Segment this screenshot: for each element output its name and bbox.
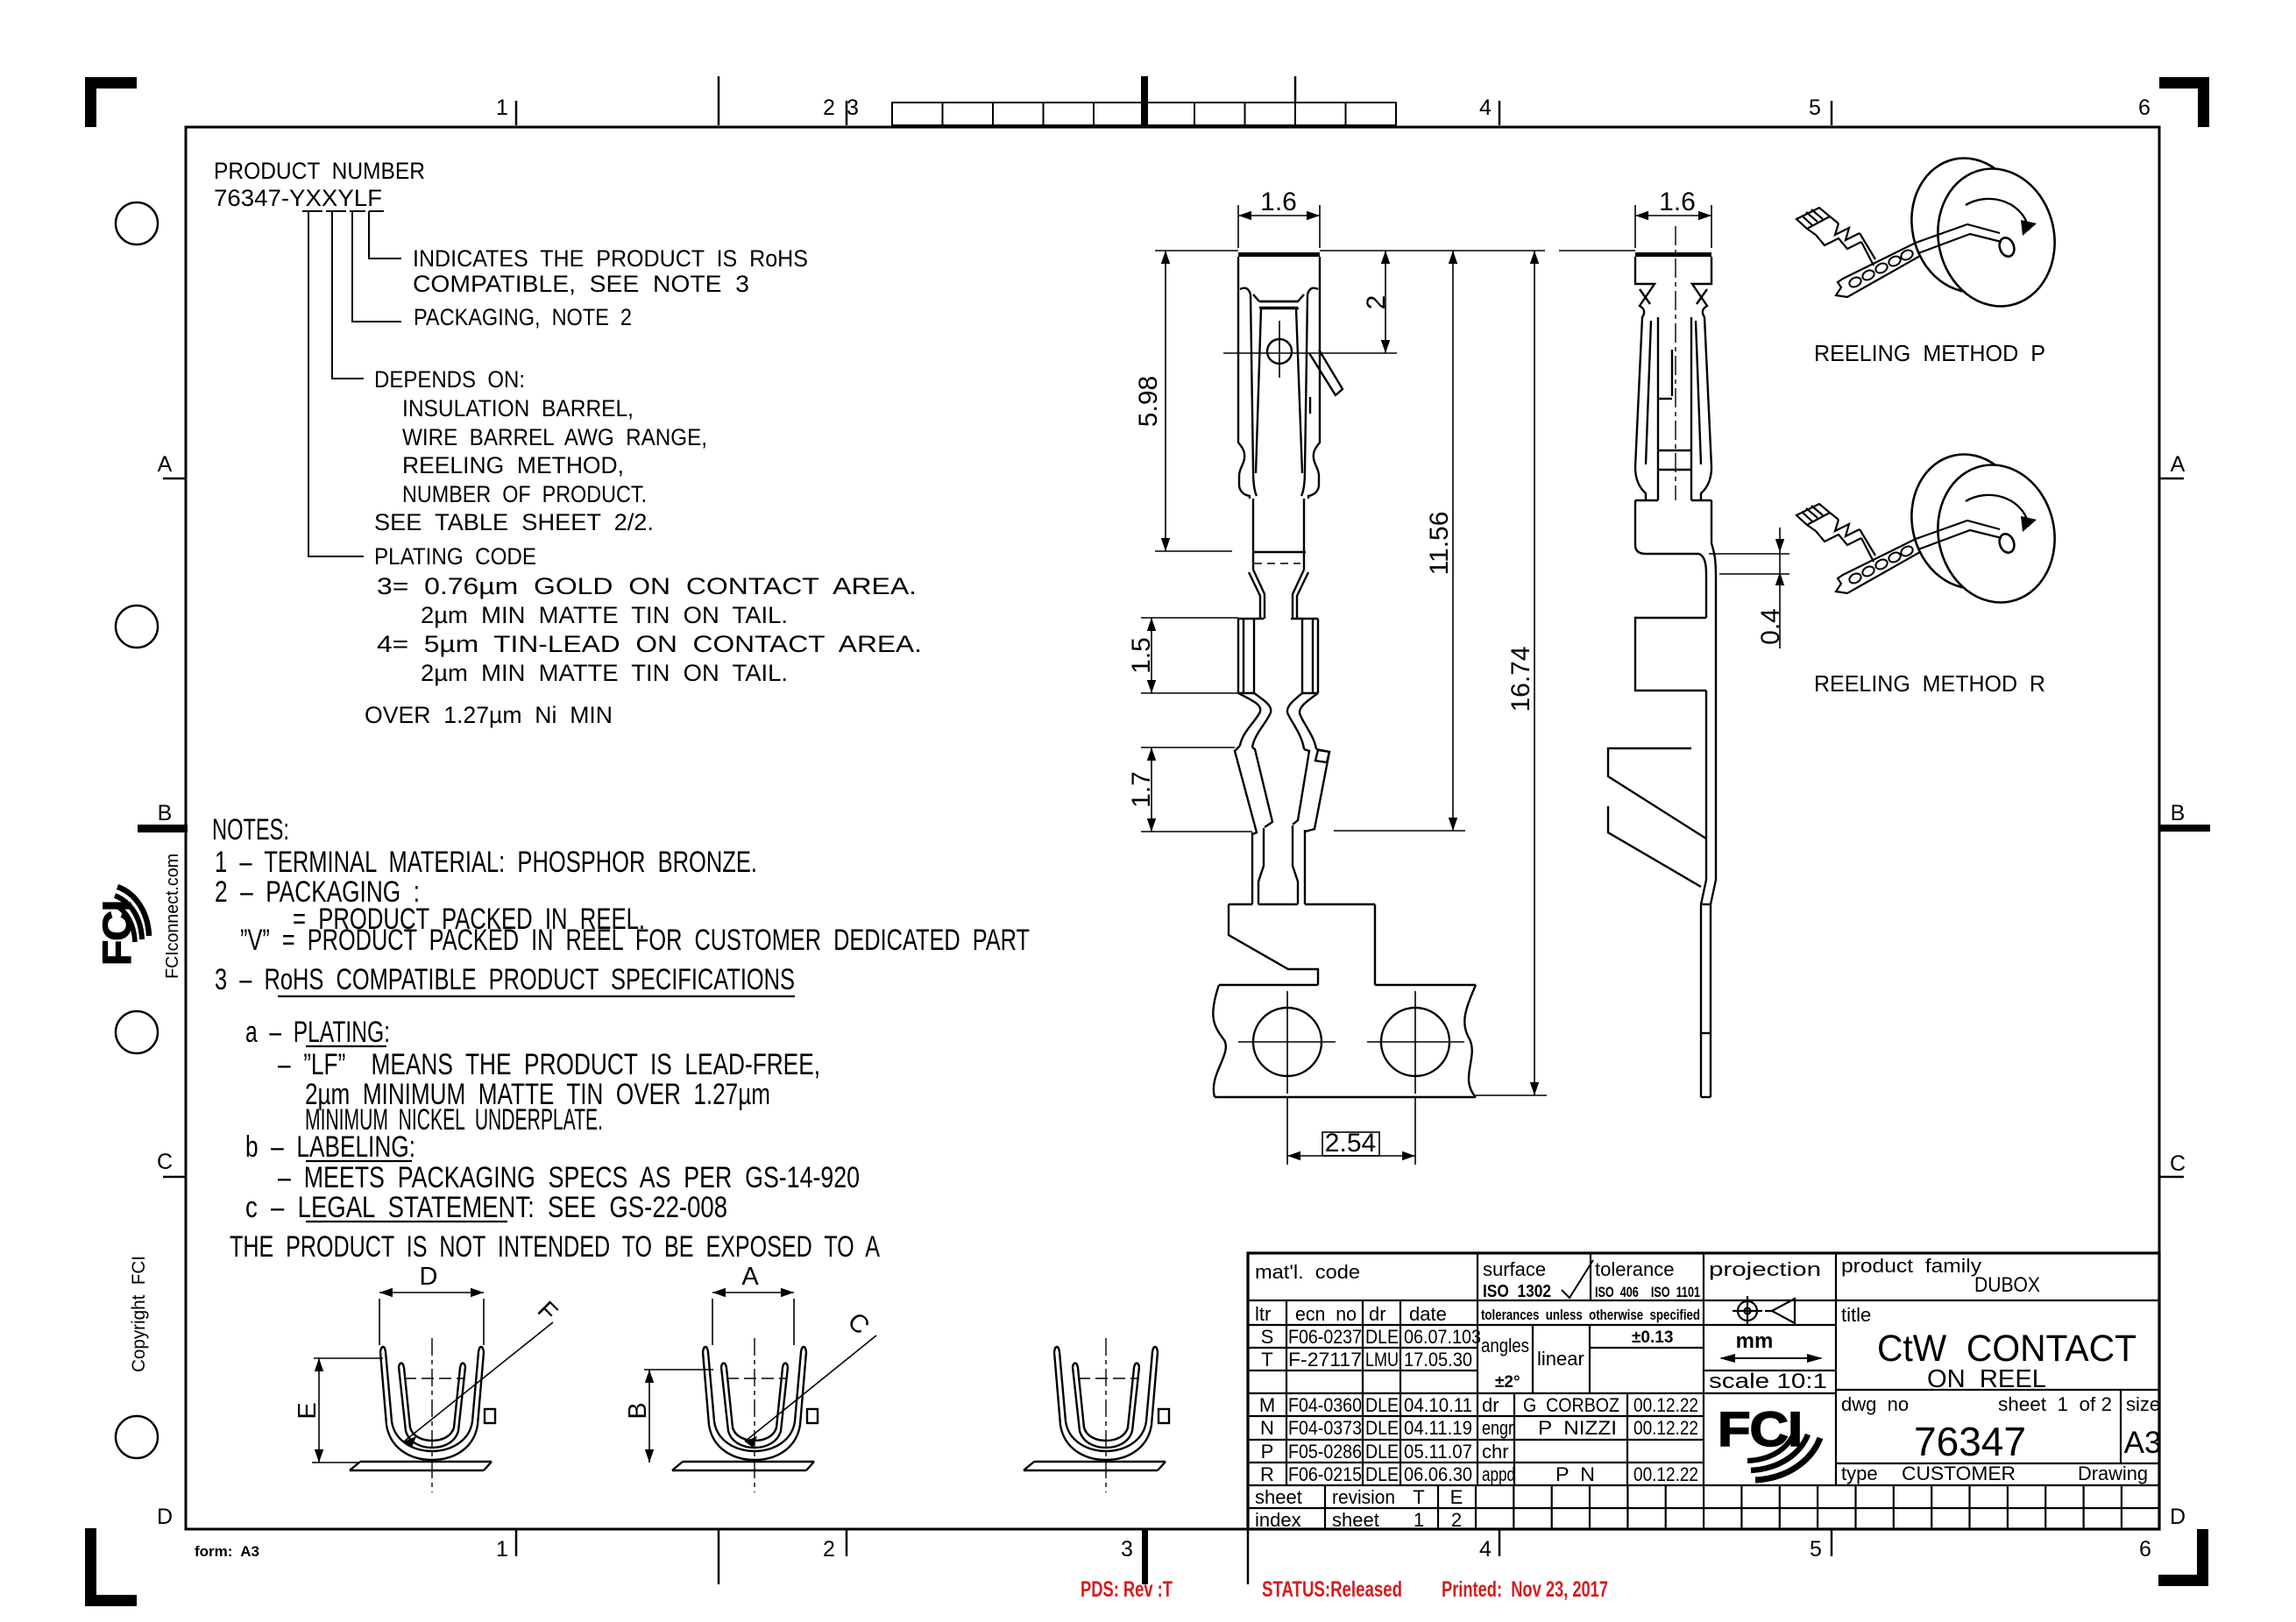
svg-text:P N: P N — [1555, 1463, 1595, 1485]
svg-text:tolerance: tolerance — [1595, 1258, 1675, 1280]
svg-text:76347: 76347 — [1914, 1419, 2026, 1464]
svg-text:2: 2 — [1362, 295, 1391, 310]
svg-text:P NIZZI: P NIZZI — [1538, 1417, 1617, 1439]
svg-text:index: index — [1255, 1509, 1301, 1531]
svg-text:title: title — [1841, 1304, 1871, 1326]
svg-text:surface: surface — [1483, 1258, 1546, 1280]
svg-text:A: A — [158, 452, 173, 477]
svg-text:F04-0360: F04-0360 — [1288, 1394, 1362, 1416]
svg-text:FCIconnect.com: FCIconnect.com — [163, 853, 182, 979]
svg-text:DUBOX: DUBOX — [1974, 1273, 2040, 1297]
svg-text:2µm MIN MATTE TIN ON TAIL: 2µm MIN MATTE TIN ON TAIL. — [421, 602, 788, 628]
svg-text:LMU: LMU — [1365, 1349, 1399, 1371]
svg-text:scale 10:1: scale 10:1 — [1709, 1370, 1827, 1393]
svg-text:00.12.22: 00.12.22 — [1633, 1463, 1698, 1485]
svg-text:linear: linear — [1537, 1348, 1584, 1370]
svg-text:F-27117: F-27117 — [1288, 1349, 1362, 1371]
svg-text:ISO 406 ISO 1101: ISO 406 ISO 1101 — [1595, 1284, 1700, 1300]
svg-text:chr: chr — [1482, 1441, 1509, 1463]
svg-text:5: 5 — [1809, 96, 1821, 120]
svg-text:Printed: Nov 23, 2017: Printed: Nov 23, 2017 — [1442, 1577, 1608, 1602]
svg-text:4= 5µm TIN-LEAD ON CONTACT: 4= 5µm TIN-LEAD ON CONTACT AREA. — [377, 631, 922, 657]
svg-text:11.56: 11.56 — [1425, 512, 1454, 576]
svg-text:17.05.30: 17.05.30 — [1404, 1349, 1472, 1371]
svg-text:c – LEGAL STATEMENT: SEE: c – LEGAL STATEMENT: SEE GS-22-008 — [245, 1191, 727, 1224]
svg-text:M: M — [1259, 1394, 1275, 1416]
svg-text:0.4: 0.4 — [1756, 608, 1785, 645]
svg-text:projection: projection — [1709, 1258, 1821, 1280]
svg-text:THE PRODUCT IS NOT INTENDE: THE PRODUCT IS NOT INTENDED TO BE EXPOSE… — [230, 1230, 880, 1264]
svg-text:DLE: DLE — [1365, 1441, 1399, 1463]
svg-text:sheet 1 of 2: sheet 1 of 2 — [1998, 1393, 2112, 1415]
svg-text:B: B — [158, 801, 173, 825]
svg-text:F06-0237: F06-0237 — [1288, 1326, 1362, 1348]
svg-text:T: T — [1261, 1349, 1272, 1371]
svg-text:1: 1 — [1414, 1509, 1424, 1531]
svg-text:6: 6 — [2138, 96, 2151, 120]
svg-text:size: size — [2126, 1393, 2160, 1415]
svg-text:1 – TERMINAL MATERIAL: PHO: 1 – TERMINAL MATERIAL: PHOSPHOR BRONZE. — [215, 846, 757, 879]
svg-text:– ”LF” MEANS THE PRODUCT: – ”LF” MEANS THE PRODUCT IS LEAD-FREE, — [278, 1048, 820, 1081]
svg-text:ISO 1302: ISO 1302 — [1483, 1282, 1551, 1301]
svg-text:”V” = PRODUCT PACKED IN R: ”V” = PRODUCT PACKED IN REEL FOR CUSTOME… — [240, 924, 1030, 957]
svg-text:sheet: sheet — [1332, 1509, 1379, 1531]
svg-text:B: B — [624, 1402, 652, 1419]
svg-text:3= 0.76µm GOLD ON CONTACT: 3= 0.76µm GOLD ON CONTACT AREA. — [377, 573, 917, 599]
svg-text:Drawing: Drawing — [2078, 1463, 2148, 1484]
svg-text:D: D — [2170, 1505, 2186, 1529]
svg-text:B: B — [2171, 801, 2186, 825]
svg-text:mat'l. code: mat'l. code — [1255, 1261, 1360, 1283]
svg-text:F04-0373: F04-0373 — [1288, 1417, 1362, 1439]
svg-text:A: A — [2171, 452, 2186, 477]
svg-text:CUSTOMER: CUSTOMER — [1902, 1463, 2016, 1484]
svg-text:N: N — [1260, 1417, 1274, 1439]
svg-text:DLE: DLE — [1365, 1326, 1399, 1348]
svg-text:DLE: DLE — [1365, 1417, 1399, 1439]
svg-text:1.7: 1.7 — [1127, 771, 1156, 808]
svg-text:16.74: 16.74 — [1506, 646, 1535, 712]
svg-text:date: date — [1409, 1303, 1447, 1325]
svg-text:WIRE BARREL AWG RANGE,: WIRE BARREL AWG RANGE, — [402, 424, 707, 450]
svg-text:1: 1 — [496, 96, 508, 120]
svg-text:F05-0286: F05-0286 — [1288, 1441, 1362, 1463]
svg-text:form: A3: form: A3 — [195, 1543, 259, 1560]
svg-text:G CORBOZ: G CORBOZ — [1523, 1394, 1619, 1416]
svg-text:76347-YXXYLF: 76347-YXXYLF — [214, 185, 382, 211]
svg-text:2: 2 — [823, 1537, 835, 1562]
svg-text:appd: appd — [1482, 1463, 1515, 1485]
svg-text:a – PLATING:: a – PLATING: — [245, 1016, 390, 1049]
svg-text:ltr: ltr — [1255, 1303, 1271, 1325]
svg-text:±0.13: ±0.13 — [1632, 1328, 1673, 1347]
svg-text:4: 4 — [1479, 96, 1492, 120]
svg-text:00.12.22: 00.12.22 — [1633, 1417, 1698, 1439]
svg-text:3 – RoHS COMPATIBLE PRODUC: 3 – RoHS COMPATIBLE PRODUCT SPECIFICATIO… — [215, 963, 795, 996]
svg-text:mm: mm — [1736, 1329, 1774, 1353]
svg-text:D: D — [157, 1505, 173, 1529]
svg-text:PDS: Rev :T: PDS: Rev :T — [1081, 1577, 1173, 1602]
svg-text:NUMBER OF PRODUCT.: NUMBER OF PRODUCT. — [402, 481, 647, 507]
svg-text:04.10.11: 04.10.11 — [1404, 1394, 1472, 1416]
svg-text:tolerances unless otherwise: tolerances unless otherwise specified — [1481, 1307, 1700, 1323]
svg-text:T: T — [1413, 1486, 1424, 1508]
svg-text:SEE TABLE SHEET 2/2.: SEE TABLE SHEET 2/2. — [374, 509, 654, 535]
svg-text:OVER 1.27µm Ni MIN: OVER 1.27µm Ni MIN — [365, 702, 613, 728]
svg-text:REELING METHOD R: REELING METHOD R — [1814, 670, 2045, 697]
svg-text:E: E — [1450, 1486, 1463, 1508]
svg-text:1.6: 1.6 — [1659, 188, 1696, 216]
svg-text:2: 2 — [823, 96, 835, 120]
svg-text:3: 3 — [847, 96, 859, 120]
svg-text:F06-0215: F06-0215 — [1288, 1463, 1362, 1485]
svg-text:INSULATION BARREL,: INSULATION BARREL, — [402, 395, 634, 421]
svg-text:angles: angles — [1481, 1335, 1529, 1356]
svg-text:product family: product family — [1841, 1255, 1981, 1277]
svg-text:1.5: 1.5 — [1127, 637, 1156, 674]
svg-text:C: C — [157, 1150, 173, 1174]
svg-text:revision: revision — [1332, 1486, 1395, 1508]
svg-text:5.98: 5.98 — [1134, 376, 1163, 427]
svg-text:6: 6 — [2139, 1537, 2151, 1562]
svg-text:STATUS:Released: STATUS:Released — [1262, 1577, 1402, 1602]
svg-text:PRODUCT NUMBER: PRODUCT NUMBER — [214, 158, 425, 184]
svg-text:– MEETS PACKAGING SPECS AS: – MEETS PACKAGING SPECS AS PER GS-14-920 — [278, 1161, 860, 1194]
svg-text:ecn no: ecn no — [1295, 1303, 1357, 1325]
svg-text:2µm MIN MATTE TIN ON TAIL: 2µm MIN MATTE TIN ON TAIL. — [421, 660, 788, 686]
svg-text:5: 5 — [1810, 1537, 1822, 1562]
svg-text:dr: dr — [1482, 1394, 1499, 1416]
svg-text:2.54: 2.54 — [1325, 1129, 1376, 1158]
svg-text:PLATING CODE: PLATING CODE — [374, 543, 536, 570]
svg-text:E: E — [294, 1402, 322, 1419]
svg-text:b – LABELING:: b – LABELING: — [245, 1130, 415, 1164]
svg-text:dr: dr — [1369, 1303, 1386, 1325]
svg-text:NOTES:: NOTES: — [212, 813, 289, 846]
svg-text:05.11.07: 05.11.07 — [1404, 1441, 1472, 1463]
svg-text:3: 3 — [1121, 1537, 1133, 1562]
svg-text:DLE: DLE — [1365, 1463, 1399, 1485]
svg-text:04.11.19: 04.11.19 — [1404, 1417, 1472, 1439]
svg-text:REELING METHOD P: REELING METHOD P — [1814, 340, 2045, 366]
svg-text:D: D — [420, 1263, 438, 1291]
svg-text:±2°: ±2° — [1495, 1373, 1520, 1392]
svg-text:REELING METHOD,: REELING METHOD, — [402, 452, 624, 478]
svg-text:00.12.22: 00.12.22 — [1633, 1394, 1698, 1416]
svg-text:1.6: 1.6 — [1260, 188, 1297, 216]
svg-text:1: 1 — [496, 1537, 508, 1562]
svg-text:4: 4 — [1479, 1537, 1492, 1562]
svg-text:A: A — [741, 1263, 759, 1291]
svg-text:FCI: FCI — [1718, 1401, 1802, 1456]
svg-text:2: 2 — [1451, 1509, 1462, 1531]
svg-text:06.06.30: 06.06.30 — [1404, 1463, 1472, 1485]
svg-text:Copyright FCI: Copyright FCI — [129, 1256, 149, 1372]
svg-text:ON REEL: ON REEL — [1927, 1365, 2046, 1393]
svg-text:dwg no: dwg no — [1841, 1393, 1909, 1415]
svg-text:CtW CONTACT: CtW CONTACT — [1877, 1328, 2137, 1370]
svg-text:DLE: DLE — [1365, 1394, 1399, 1416]
svg-text:S: S — [1261, 1326, 1274, 1348]
svg-text:A3: A3 — [2124, 1426, 2162, 1460]
svg-text:sheet: sheet — [1255, 1486, 1302, 1508]
svg-text:06.07.103: 06.07.103 — [1404, 1326, 1481, 1348]
svg-text:INDICATES THE PRODUCT IS R: INDICATES THE PRODUCT IS RoHS — [413, 245, 808, 272]
svg-text:type: type — [1841, 1463, 1878, 1484]
svg-text:engr: engr — [1482, 1417, 1513, 1439]
svg-text:DEPENDS ON:: DEPENDS ON: — [374, 366, 525, 393]
svg-text:P: P — [1261, 1441, 1274, 1463]
svg-text:COMPATIBLE, SEE NOTE 3: COMPATIBLE, SEE NOTE 3 — [413, 271, 749, 297]
svg-text:R: R — [1260, 1463, 1274, 1485]
svg-text:PACKAGING, NOTE 2: PACKAGING, NOTE 2 — [414, 304, 632, 330]
svg-text:C: C — [2170, 1151, 2186, 1176]
